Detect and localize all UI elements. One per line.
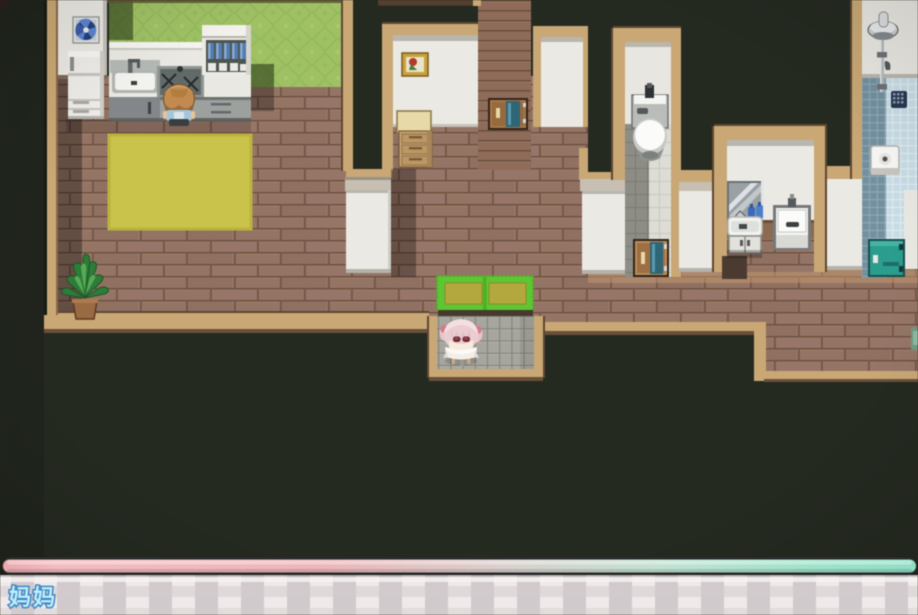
svg-text:妈妈: 妈妈 [9, 585, 57, 610]
